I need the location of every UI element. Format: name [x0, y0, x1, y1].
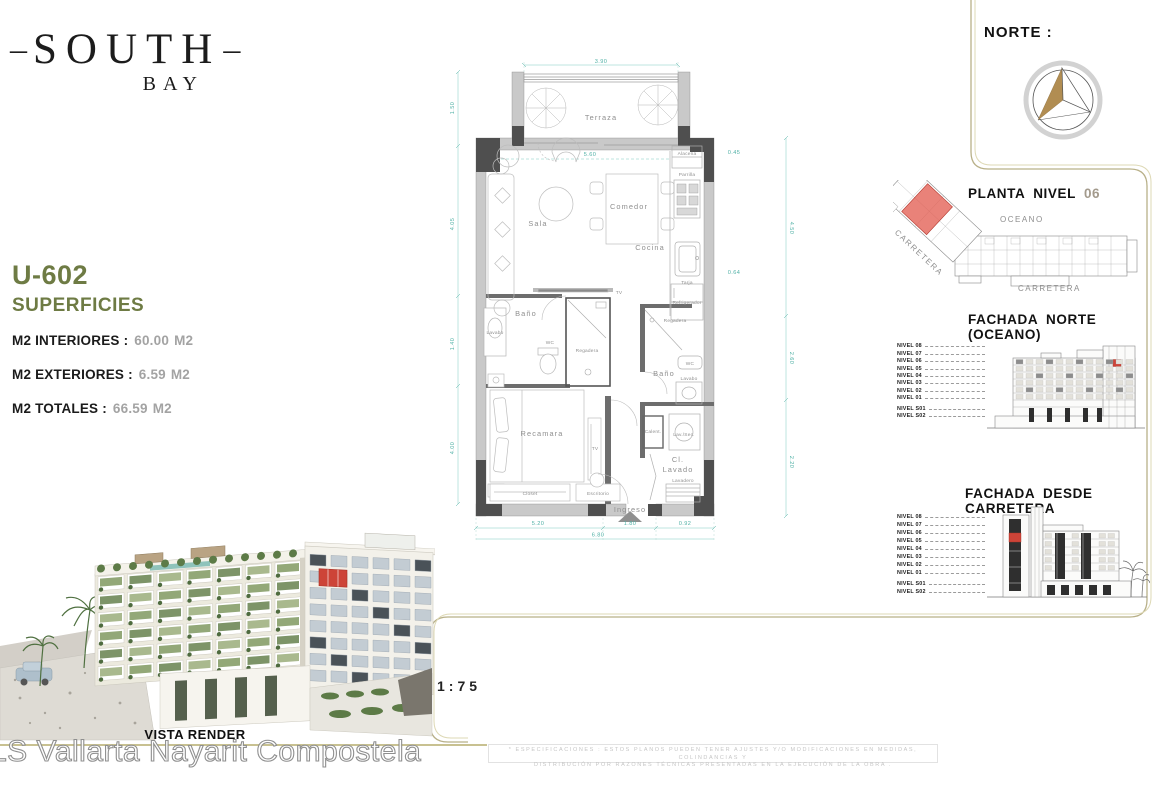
fixture-label-wc1: WC [546, 340, 555, 346]
disclaimer-note: * ESPECIFICACIONES : ESTOS PLANOS PUEDEN… [488, 744, 938, 763]
nivel-row: NIVEL S02 [897, 587, 985, 595]
fixture-label-regadera1: Regadera [576, 348, 599, 354]
fixture-label-lavadero: Lavadero [672, 478, 694, 484]
fixture-label-tarja: Tarja [681, 280, 693, 286]
fixture-label-tv2: TV [592, 446, 599, 452]
m2-interiores-value: 60.00 [134, 333, 169, 348]
logo-subtitle: BAY [10, 73, 204, 96]
m2-unit: M2 [153, 401, 172, 416]
main-facade [95, 539, 305, 686]
nivel-label: NIVEL S02 [897, 589, 926, 595]
dim-bottom-1: 1.80 [624, 521, 637, 527]
dim-left-2: 1.40 [450, 338, 456, 351]
nivel-row: NIVEL S01 [897, 579, 985, 587]
elevation-road-drawing [985, 505, 1150, 610]
unit-highlight-render [319, 569, 347, 587]
elevation-north-drawing [985, 338, 1147, 438]
nivel-row: NIVEL 06 [897, 528, 985, 536]
dark-strip-tower [1009, 519, 1021, 591]
right-facade [305, 530, 435, 695]
room-label-terraza: Terraza [585, 113, 617, 122]
nivel-leader-line [925, 361, 985, 362]
scale-label: 1:75 [437, 678, 481, 694]
nivel-row: NIVEL 07 [897, 349, 985, 356]
fixture-label-regadera2: Regadera [664, 318, 687, 324]
m2-interiores-row: M2 INTERIORES :60.00M2 [12, 333, 193, 348]
logo-dash-right: – [223, 33, 240, 67]
fixture-label-lavsec: Lav./Sec. [673, 432, 694, 438]
dim-kitchen-1: 0.64 [728, 270, 741, 276]
fixture-label-closet: Closet [523, 491, 538, 497]
nivel-leader-line [929, 416, 985, 417]
dim-inner: 5.60 [584, 152, 597, 158]
compass-icon [1008, 48, 1118, 152]
nivel-leader-line [925, 557, 985, 558]
unit-highlight-elevation-road [1009, 533, 1021, 542]
surfaces-title: SUPERFICIES [12, 295, 144, 317]
nivel-row: NIVEL S02 [897, 412, 985, 419]
m2-totales-value: 66.59 [113, 401, 148, 416]
nivel-row: NIVEL 01 [897, 394, 985, 401]
nivel-leader-line [925, 565, 985, 566]
nivel-leader-line [925, 525, 985, 526]
m2-totales-label: M2 TOTALES : [12, 401, 107, 416]
m2-exteriores-row: M2 EXTERIORES :6.59M2 [12, 367, 190, 382]
nivel-leader-line [925, 383, 985, 384]
nivel-row: NIVEL 04 [897, 372, 985, 379]
dim-right-3: 2.20 [788, 456, 794, 469]
nivel-row: NIVEL 03 [897, 379, 985, 386]
nivel-leader-line [929, 409, 985, 410]
dim-right-2: 2.60 [788, 352, 794, 365]
brand-logo: – SOUTH – BAY [10, 28, 228, 96]
fixture-label-lavabo1: Lavabo [487, 330, 504, 336]
fixture-label-wc2: WC [686, 361, 695, 367]
room-label-bano1: Baño [515, 309, 537, 318]
nivel-label: NIVEL S02 [897, 413, 926, 419]
disclaimer-line2: DISTRIBUCIÓN POR RAZONES TÉCNICAS PRESEN… [489, 762, 937, 770]
nivel-leader-line [925, 354, 985, 355]
logo-title: SOUTH [33, 28, 221, 71]
m2-unit: M2 [174, 333, 193, 348]
nivel-leader-line [929, 592, 985, 593]
nivel-leader-line [925, 541, 985, 542]
road-label: CARRETERA [1018, 284, 1081, 293]
dim-top: 3.90 [595, 59, 608, 65]
dim-bottom-0: 5.20 [532, 521, 545, 527]
nivel-leader-line [925, 573, 985, 574]
dim-bottom-2: 0.92 [679, 521, 692, 527]
room-label-recamara: Recamara [521, 429, 564, 438]
nivel-row: NIVEL 01 [897, 568, 985, 576]
nivel-row: NIVEL 02 [897, 386, 985, 393]
nivel-leader-line [929, 584, 985, 585]
nivel-row: NIVEL 02 [897, 560, 985, 568]
nivel-row: NIVEL 04 [897, 544, 985, 552]
fixture-label-parrilla: Parrilla [679, 172, 696, 178]
dim-left-0: 1.50 [450, 102, 456, 115]
dim-right-0: 0.45 [728, 150, 741, 156]
nivel-row: NIVEL 06 [897, 357, 985, 364]
fixture-label-refrigerador: Refrigerador [672, 300, 701, 306]
nivel-row: NIVEL 05 [897, 364, 985, 371]
dim-bottom-total: 6.80 [592, 533, 605, 539]
room-label-ingreso: Ingreso [614, 505, 646, 514]
nivel-leader-line [925, 346, 985, 347]
logo-dash-left: – [10, 33, 27, 67]
nivel-row: NIVEL 05 [897, 536, 985, 544]
nivel-leader-line [925, 398, 985, 399]
fixture-label-tv1: TV [616, 290, 623, 296]
m2-unit: M2 [171, 367, 190, 382]
dim-left-1: 4.05 [450, 218, 456, 231]
nivel-leader-line [925, 391, 985, 392]
dim-right-1: 4.50 [788, 222, 794, 235]
nivel-leader-line [925, 517, 985, 518]
room-label-sala: Sala [528, 219, 547, 228]
room-label-cl: Cl. [672, 455, 684, 464]
fixture-label-lavabo2: Lavabo [681, 376, 698, 382]
nivel-leader-line [925, 549, 985, 550]
nivel-column-north: NIVEL 08NIVEL 07NIVEL 06NIVEL 05NIVEL 04… [897, 342, 985, 419]
fixture-label-alacena: Alacena [678, 151, 697, 157]
room-label-cocina: Cocina [635, 243, 665, 252]
room-label-comedor: Comedor [610, 202, 648, 211]
ocean-label: OCEANO [1000, 215, 1044, 224]
nivel-row: NIVEL S01 [897, 404, 985, 411]
fixture-label-escritorio: Escritorio [587, 491, 609, 497]
disclaimer-line1: * ESPECIFICACIONES : ESTOS PLANOS PUEDEN… [489, 747, 937, 762]
floor-plan: Terraza Sala Comedor Cocina Baño Baño Re… [438, 56, 808, 548]
room-label-lavado: Lavado [663, 465, 694, 474]
nivel-label: NIVEL 01 [897, 395, 922, 401]
m2-interiores-label: M2 INTERIORES : [12, 333, 128, 348]
nivel-label: NIVEL 01 [897, 570, 922, 576]
podium [160, 666, 310, 729]
watermark: LS Vallarta Nayarit Compostela [0, 735, 421, 769]
nivel-column-road: NIVEL 08NIVEL 07NIVEL 06NIVEL 05NIVEL 04… [897, 512, 985, 595]
building-render [0, 518, 435, 742]
plan-sheet: – SOUTH – BAY U-602 SUPERFICIES M2 INTER… [0, 0, 1170, 785]
nivel-row: NIVEL 08 [897, 342, 985, 349]
m2-exteriores-value: 6.59 [139, 367, 166, 382]
north-label: NORTE : [984, 24, 1053, 41]
unit-id: U-602 [12, 260, 88, 291]
nivel-row: NIVEL 07 [897, 520, 985, 528]
dim-left-3: 4.00 [450, 442, 456, 455]
nivel-row: NIVEL 08 [897, 512, 985, 520]
m2-totales-row: M2 TOTALES :66.59M2 [12, 401, 172, 416]
nivel-leader-line [925, 376, 985, 377]
nivel-row: NIVEL 03 [897, 552, 985, 560]
room-label-bano2: Baño [653, 369, 675, 378]
nivel-leader-line [925, 533, 985, 534]
fixture-label-calent: Calent. [645, 429, 662, 435]
nivel-leader-line [925, 369, 985, 370]
m2-exteriores-label: M2 EXTERIORES : [12, 367, 133, 382]
